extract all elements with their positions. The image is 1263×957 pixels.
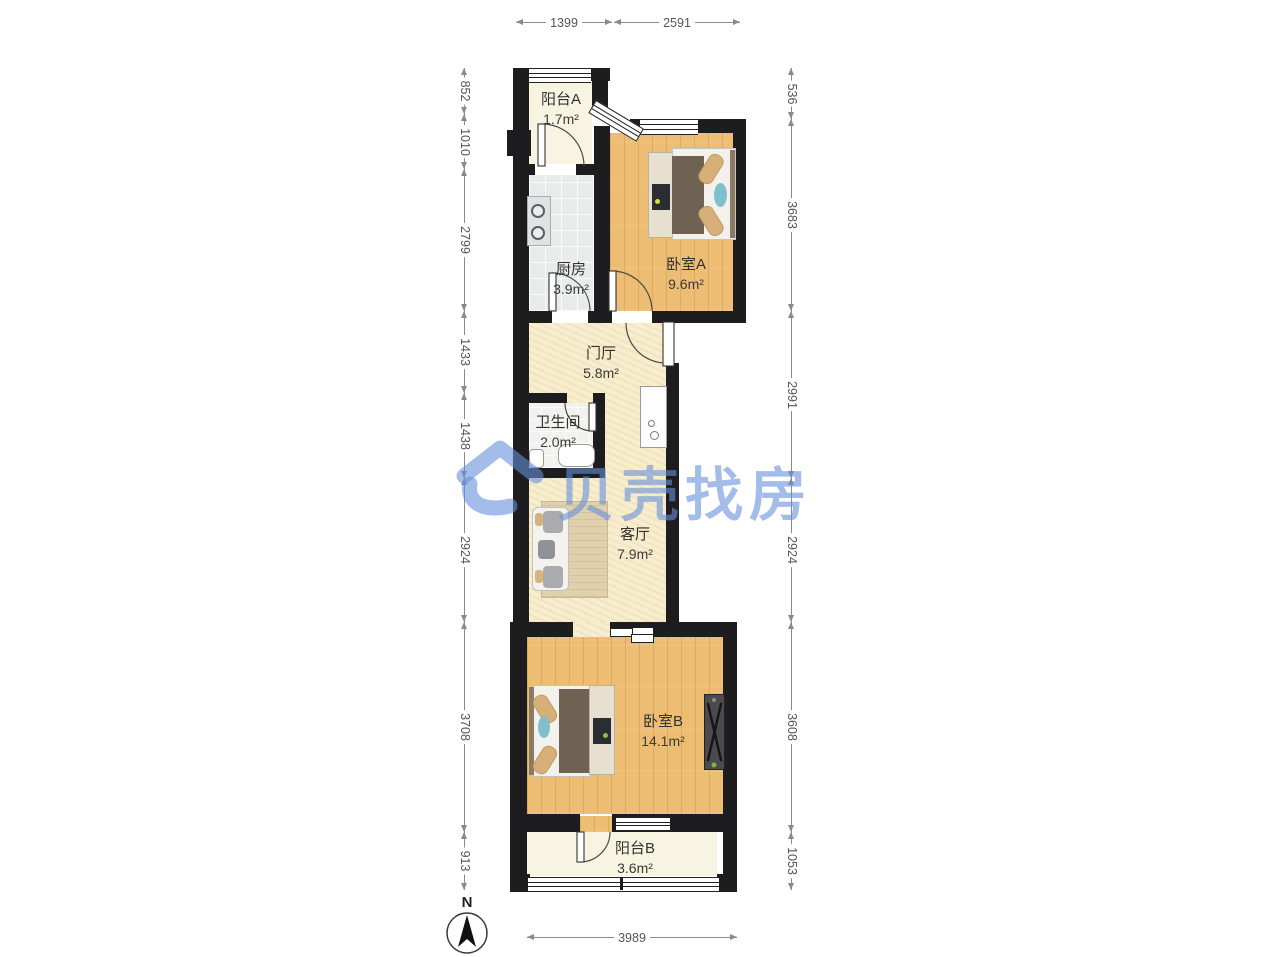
room-area: 1.7m² [541, 110, 581, 128]
dimension-value: 2991 [785, 378, 799, 412]
dimension-value: 2924 [458, 533, 472, 567]
dimension-value: 2799 [458, 223, 472, 257]
dimension-right-5: 3608 [791, 622, 792, 832]
dimension-left-3: 2799 [464, 169, 465, 311]
compass-north-label: N [456, 894, 478, 911]
room-area: 3.6m² [615, 859, 655, 877]
dimension-value: 1438 [458, 419, 472, 453]
room-area: 3.9m² [553, 280, 589, 298]
floorplan-canvas: 阳台A 1.7m² 厨房 3.9m² 卧室A 9.6m² 门厅 5.8m² 卫生… [0, 0, 1263, 957]
compass-icon [445, 911, 490, 956]
dimension-value: 3608 [785, 710, 799, 744]
dimension-right-1: 536 [791, 68, 792, 119]
door-and-detail-overlay [0, 0, 1263, 957]
dimension-left-1: 852 [464, 68, 465, 114]
room-name: 厨房 [553, 260, 589, 280]
dimension-left-6: 2924 [464, 478, 465, 622]
dimension-value: 852 [458, 78, 472, 105]
dimension-value: 1010 [458, 125, 472, 159]
room-area: 9.6m² [666, 275, 706, 293]
dimension-top-1: 1399 [516, 22, 612, 23]
room-label-living: 客厅 7.9m² [617, 525, 653, 563]
room-label-kitchen: 厨房 3.9m² [553, 260, 589, 298]
room-label-hall: 门厅 5.8m² [583, 344, 619, 382]
dimension-left-4: 1433 [464, 311, 465, 393]
room-label-bathroom: 卫生间 2.0m² [535, 413, 580, 451]
room-label-balcony-b: 阳台B 3.6m² [615, 839, 655, 877]
room-name: 卧室A [666, 255, 706, 275]
dimension-left-7: 3708 [464, 622, 465, 832]
room-area: 2.0m² [535, 433, 580, 451]
dimension-value: 913 [458, 848, 472, 875]
room-name: 阳台A [541, 90, 581, 110]
room-label-bedroom-a: 卧室A 9.6m² [666, 255, 706, 293]
dimension-left-5: 1438 [464, 393, 465, 478]
dimension-right-6: 1053 [791, 832, 792, 890]
dimension-value: 2924 [785, 533, 799, 567]
dimension-left-2: 1010 [464, 114, 465, 169]
dimension-right-4: 2924 [791, 478, 792, 622]
room-name: 门厅 [583, 344, 619, 364]
dimension-right-2: 3683 [791, 119, 792, 311]
room-name: 卧室B [641, 712, 685, 732]
dimension-top-2: 2591 [614, 22, 740, 23]
dimension-value: 3708 [458, 710, 472, 744]
dimension-right-3: 2991 [791, 311, 792, 478]
dimension-value: 2591 [659, 16, 695, 30]
room-label-balcony-a: 阳台A 1.7m² [541, 90, 581, 128]
room-label-bedroom-b: 卧室B 14.1m² [641, 712, 685, 750]
dimension-value: 3989 [614, 931, 650, 945]
room-area: 7.9m² [617, 545, 653, 563]
room-name: 阳台B [615, 839, 655, 859]
room-area: 14.1m² [641, 732, 685, 750]
dimension-bottom-1: 3989 [527, 937, 737, 938]
room-name: 客厅 [617, 525, 653, 545]
room-name: 卫生间 [535, 413, 580, 433]
dimension-value: 1399 [546, 16, 582, 30]
dimension-left-8: 913 [464, 832, 465, 890]
dimension-value: 1433 [458, 335, 472, 369]
dimension-value: 3683 [785, 198, 799, 232]
room-area: 5.8m² [583, 364, 619, 382]
dimension-value: 536 [785, 80, 799, 107]
dimension-value: 1053 [785, 844, 799, 878]
